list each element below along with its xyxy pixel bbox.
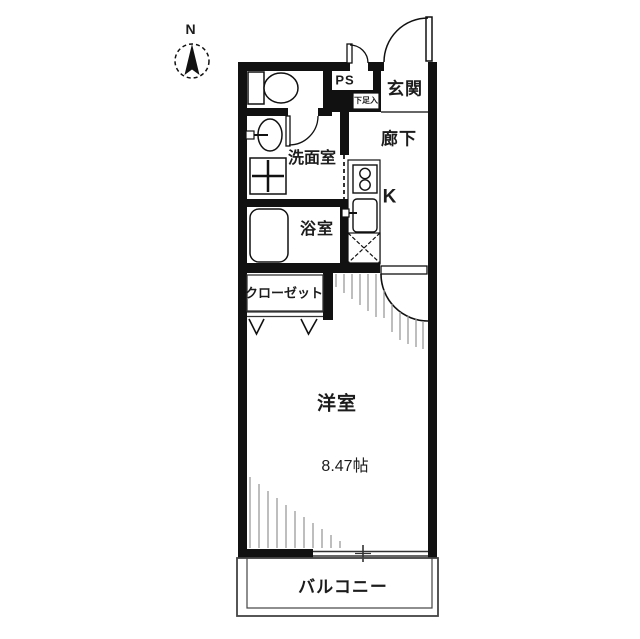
compass-north-label: N <box>185 22 196 36</box>
pipe-space-label: PS <box>335 74 354 87</box>
hallway-label: 廊下 <box>381 131 417 148</box>
western-room-door <box>381 266 428 321</box>
western-room-size-label: 8.47帖 <box>321 459 368 475</box>
closet-label: クローゼット <box>245 287 323 300</box>
refrigerator-space-icon <box>348 233 380 263</box>
floor-plan-drawing <box>0 0 640 639</box>
toilet-icon <box>248 72 298 104</box>
stove-icon <box>353 165 377 193</box>
bathroom-label: 浴室 <box>300 222 334 238</box>
washroom-label: 洗面室 <box>288 151 336 167</box>
washroom-door <box>286 116 318 146</box>
closet-folding-doors-icon <box>249 319 317 334</box>
western-room-label: 洋室 <box>317 395 357 414</box>
washer-pan-icon <box>250 158 286 194</box>
kitchen-counter <box>342 160 380 264</box>
corner-hatch <box>250 477 340 548</box>
entrance-door <box>384 17 432 62</box>
compass-icon <box>175 44 209 78</box>
ps-door <box>347 44 368 63</box>
shoe-box-label: 下足入 <box>354 97 378 105</box>
sliding-window-icon <box>313 545 428 562</box>
door-swing-hatch <box>336 274 423 349</box>
washbasin-icon <box>246 119 282 151</box>
entrance-label: 玄関 <box>387 81 423 98</box>
floor-plan: N PS 玄関 下足入 廊下 洗面室 K 浴室 クローゼット 洋室 8.47帖 … <box>0 0 640 639</box>
balcony-label: バルコニー <box>298 579 388 596</box>
kitchen-label: K <box>383 188 398 207</box>
bathtub-icon <box>250 209 288 262</box>
